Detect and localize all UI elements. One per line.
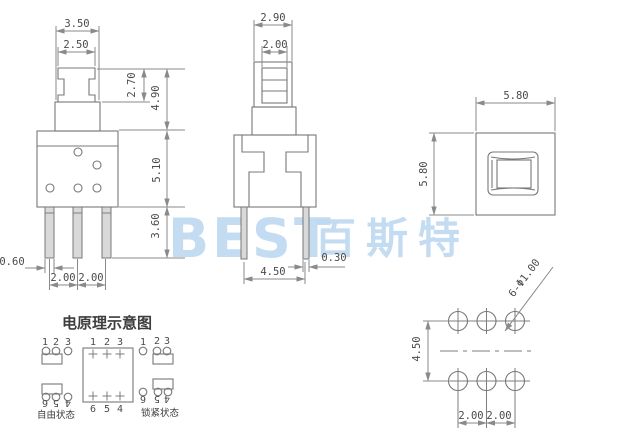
svg-text:5: 5 xyxy=(154,393,160,404)
schematic-free-state: 1 2 3 6 5 4 自由状态 xyxy=(37,337,76,421)
locked-top-bridge xyxy=(153,354,173,364)
svg-text:2: 2 xyxy=(154,336,160,347)
top-button-inner xyxy=(497,160,531,188)
svg-text:5.80: 5.80 xyxy=(503,90,528,102)
svg-text:3.60: 3.60 xyxy=(150,213,162,238)
svg-text:2.00: 2.00 xyxy=(78,272,103,284)
svg-text:2.00: 2.00 xyxy=(262,39,287,51)
locked-bottom-bridge xyxy=(153,379,173,389)
free-top-bridge xyxy=(42,354,62,364)
svg-text:0.60: 0.60 xyxy=(0,256,25,268)
front-dim-cap-width: 2.50 xyxy=(58,39,95,66)
side-plunger xyxy=(262,68,287,103)
svg-text:3.50: 3.50 xyxy=(64,18,89,30)
schematic-locked-state: 1 2 3 6 5 4 锁紧状态 xyxy=(139,336,179,419)
locked-state-label: 锁紧状态 xyxy=(141,407,180,419)
front-view: 3.50 2.50 2.70 4.90 5.10 xyxy=(0,18,185,290)
svg-text:3: 3 xyxy=(117,337,123,348)
layout-dim-col-pitch: 2.00 2.00 xyxy=(458,410,515,423)
watermark: BEST 百斯特 xyxy=(168,207,470,270)
top-button-arcs xyxy=(491,157,535,190)
svg-text:3: 3 xyxy=(164,336,170,347)
side-dim-plunger-depth: 2.00 xyxy=(262,39,288,67)
svg-text:6: 6 xyxy=(42,397,48,408)
svg-text:5: 5 xyxy=(53,397,59,408)
drawing-svg: BEST 百斯特 3.50 xyxy=(0,0,627,443)
side-body-step-left xyxy=(242,135,264,207)
front-body xyxy=(37,131,118,207)
pcb-hole-layout: 4.50 2.00 2.00 6-Φ1.00 xyxy=(411,257,553,428)
side-plunger-ribs xyxy=(262,80,287,91)
side-button-cap xyxy=(254,62,292,107)
svg-text:0.30: 0.30 xyxy=(321,252,346,264)
front-dim-cap-height: 2.70 xyxy=(97,69,185,102)
top-view: 5.80 5.80 xyxy=(418,90,555,215)
svg-text:6: 6 xyxy=(140,393,146,404)
svg-text:5.10: 5.10 xyxy=(151,157,163,182)
svg-text:6-Φ1.00: 6-Φ1.00 xyxy=(506,257,542,300)
svg-text:2.90: 2.90 xyxy=(260,12,285,24)
svg-text:2.70: 2.70 xyxy=(126,72,138,97)
front-button-stem xyxy=(55,102,100,131)
svg-text:2.00: 2.00 xyxy=(458,410,483,422)
side-body xyxy=(234,135,316,207)
contact-crosses xyxy=(89,350,125,401)
svg-text:4: 4 xyxy=(65,397,71,408)
svg-text:5: 5 xyxy=(104,404,110,415)
schematic-switch-box: 1 2 3 6 5 4 xyxy=(83,337,133,415)
svg-text:4: 4 xyxy=(117,404,123,415)
svg-text:4.90: 4.90 xyxy=(150,85,162,110)
circuit-schematic: 电原理示意图 1 2 3 6 5 4 自由状态 1 2 3 xyxy=(37,314,180,421)
svg-text:5.80: 5.80 xyxy=(418,161,430,186)
svg-text:4: 4 xyxy=(164,393,170,404)
svg-text:1: 1 xyxy=(140,337,146,348)
top-dim-width: 5.80 xyxy=(476,90,555,131)
free-bottom-bridge xyxy=(42,384,62,394)
svg-text:2.50: 2.50 xyxy=(63,39,88,51)
side-dim-cap-depth: 2.90 xyxy=(254,12,292,61)
svg-text:6: 6 xyxy=(90,404,96,415)
schematic-title: 电原理示意图 xyxy=(62,314,152,332)
side-base xyxy=(252,107,296,135)
front-body-rivets xyxy=(46,148,101,192)
svg-text:4.50: 4.50 xyxy=(260,266,285,278)
svg-text:1: 1 xyxy=(90,337,96,348)
front-dim-pin-pitch: 2.00 2.00 xyxy=(50,259,106,290)
front-dim-top-width: 3.50 xyxy=(56,18,99,100)
front-dim-leg-width: 0.60 xyxy=(0,256,74,273)
svg-text:2: 2 xyxy=(53,337,59,348)
top-dim-height: 5.80 xyxy=(418,133,474,215)
svg-text:4.50: 4.50 xyxy=(411,336,423,361)
technical-drawing-sheet: BEST 百斯特 3.50 xyxy=(0,0,627,443)
svg-text:3: 3 xyxy=(65,337,71,348)
free-state-label: 自由状态 xyxy=(37,409,76,421)
svg-text:2: 2 xyxy=(104,337,110,348)
hole-callout: 6-Φ1.00 xyxy=(505,257,553,331)
svg-text:1: 1 xyxy=(42,337,48,348)
front-legs xyxy=(45,207,111,258)
front-dim-body-height: 5.10 xyxy=(119,131,185,207)
front-button-cap xyxy=(58,68,95,102)
svg-text:2.00: 2.00 xyxy=(50,272,75,284)
svg-text:2.00: 2.00 xyxy=(486,410,511,422)
side-body-step-right xyxy=(286,135,308,207)
